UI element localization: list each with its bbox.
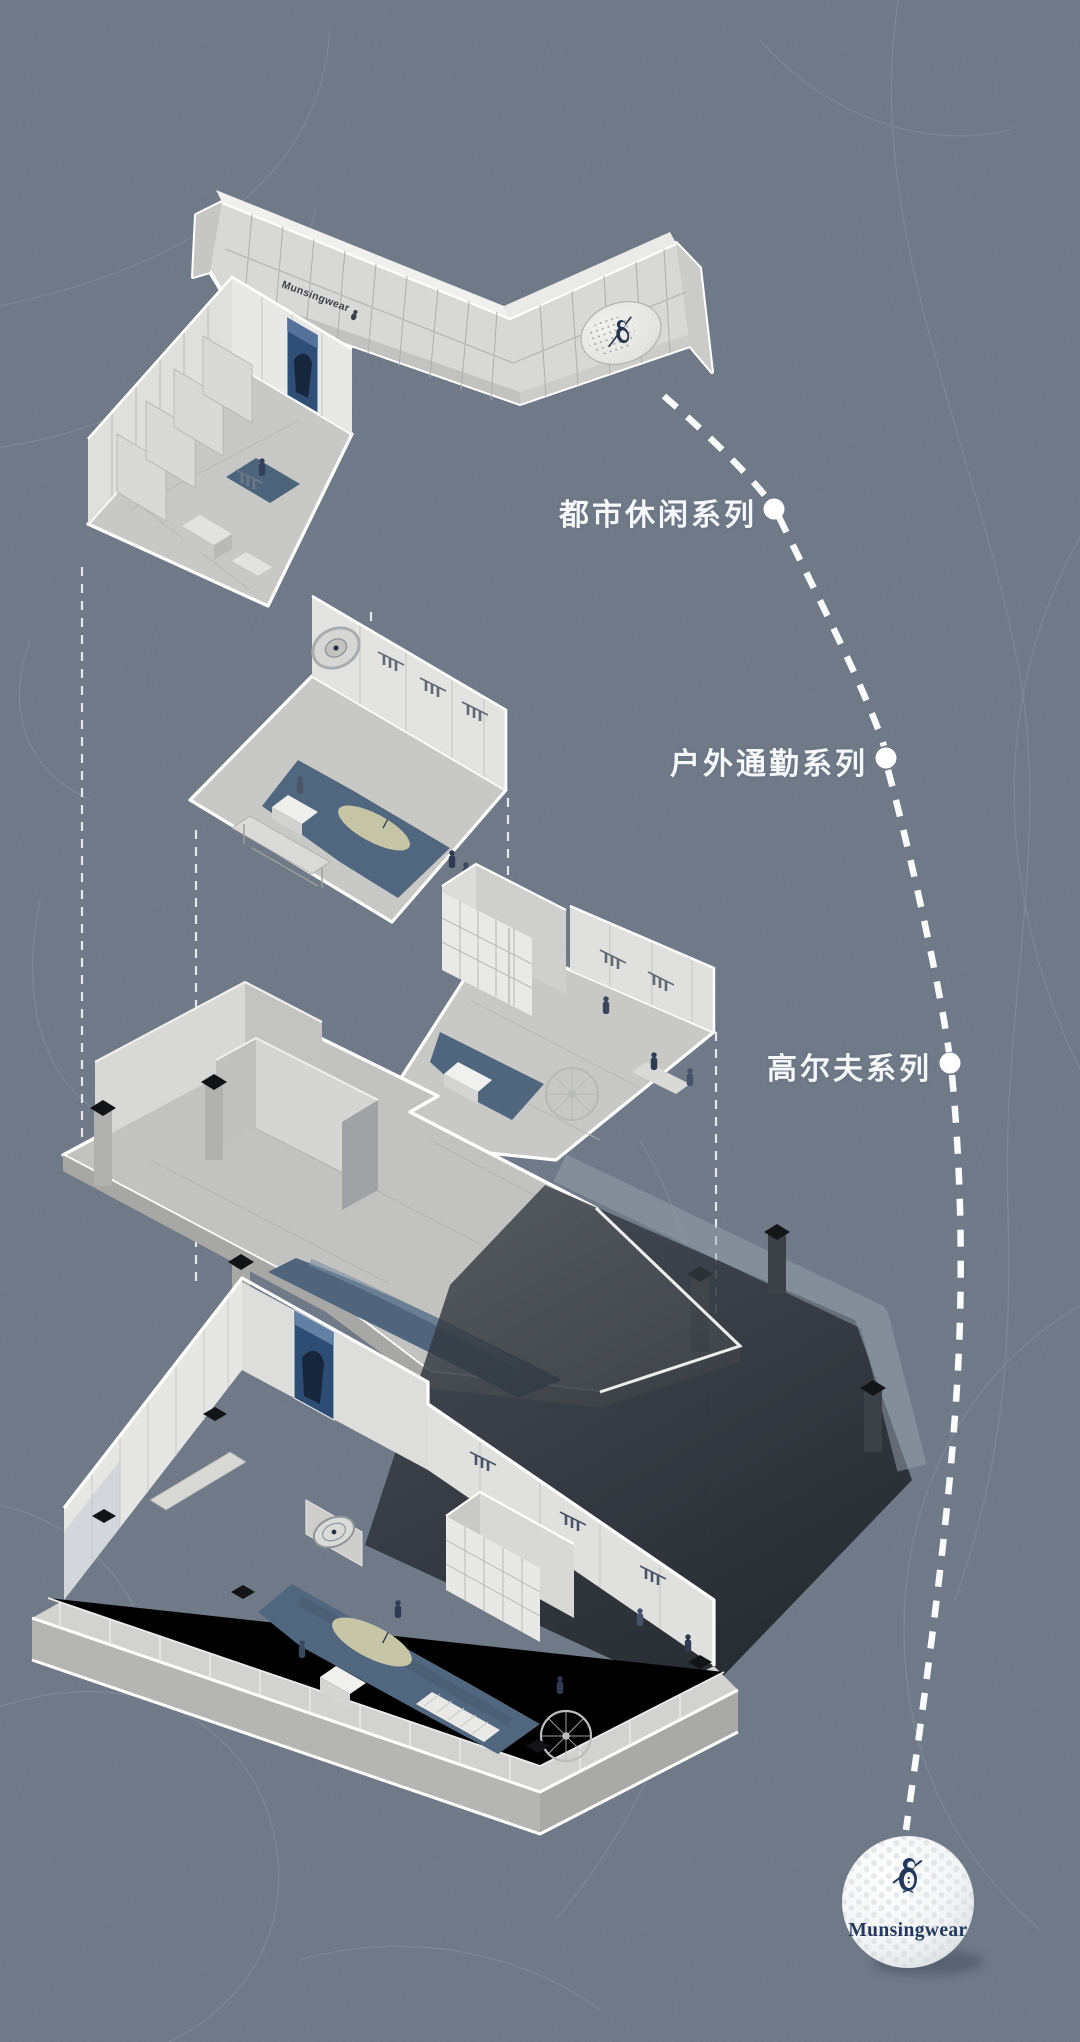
store-mannequin — [557, 1676, 563, 1694]
store-mannequin — [299, 1640, 305, 1658]
zone3-mannequin — [603, 996, 609, 1014]
store-fan-sculpture — [541, 1711, 591, 1761]
store-mannequin — [395, 1600, 401, 1618]
series-dot-golf — [940, 1053, 961, 1074]
zone2-mannequin — [297, 776, 303, 794]
series-dot-outdoor-commuter — [876, 748, 897, 769]
zone3-fan-sculpture — [546, 1068, 598, 1120]
zone1-mannequin — [259, 458, 265, 476]
series-dot-urban-casual — [764, 499, 785, 520]
golf-ball-wordmark: Munsingwear — [848, 1920, 967, 1941]
zone3-mannequin — [651, 1052, 657, 1070]
diagram-artwork: Munsingwear — [0, 0, 1080, 2042]
series-label-urban-casual: 都市休闲系列 — [559, 490, 757, 534]
zone3-mannequin — [687, 1068, 693, 1086]
series-label-golf: 高尔夫系列 — [767, 1044, 932, 1088]
zone2-mannequin — [449, 850, 455, 868]
store-mannequin — [637, 1608, 643, 1626]
series-label-outdoor-commuter: 户外通勤系列 — [670, 739, 868, 783]
exploded-axonometric-poster: Munsingwear — [0, 0, 1080, 2042]
store-mannequin — [685, 1634, 691, 1652]
